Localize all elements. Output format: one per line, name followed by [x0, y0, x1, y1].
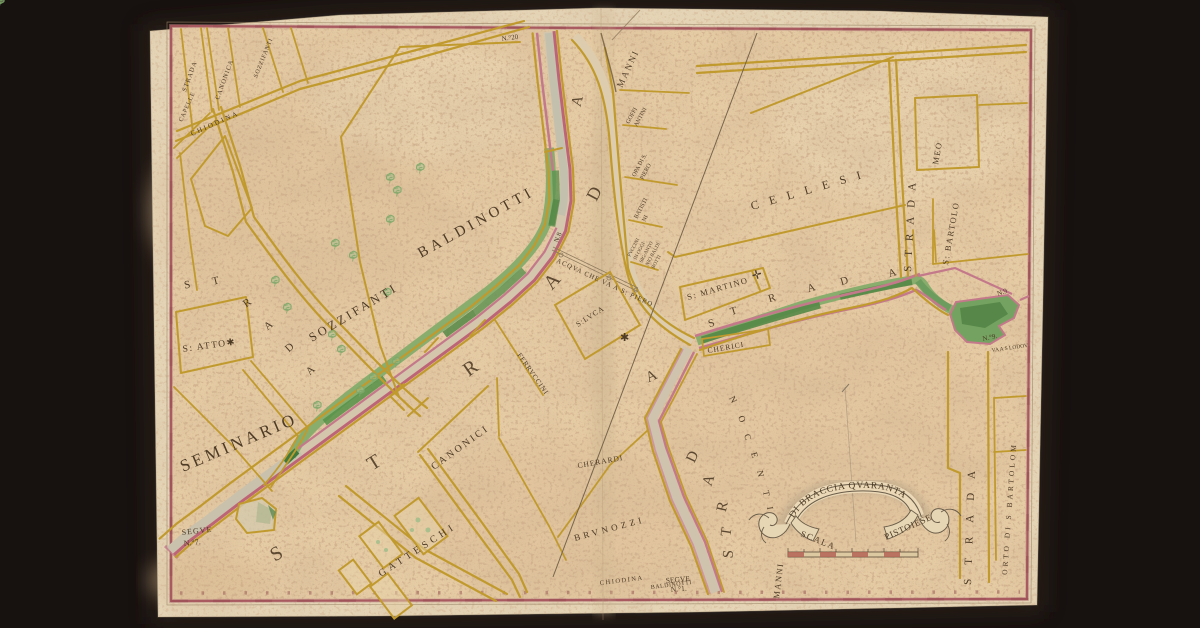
svg-text:N.°7.: N.°7.	[183, 537, 201, 548]
svg-text:S: S	[721, 549, 738, 559]
svg-text:N.°1.: N.°1.	[670, 584, 687, 594]
svg-text:✱: ✱	[620, 332, 629, 344]
